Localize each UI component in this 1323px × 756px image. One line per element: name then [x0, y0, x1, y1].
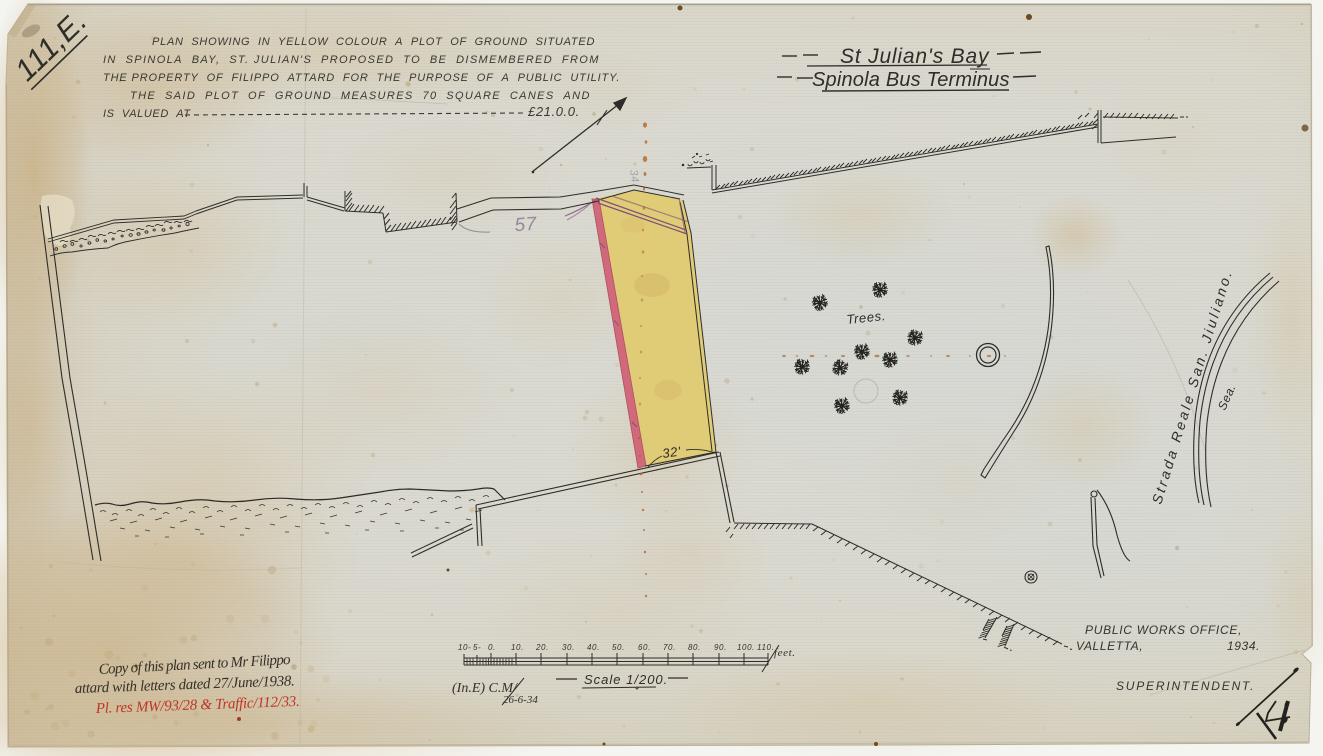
svg-text:PLAN SHOWING IN YELLOW COL: PLAN SHOWING IN YELLOW COLOUR A PLOT OF …	[152, 36, 595, 48]
svg-text:IN SPINOLA BAY, ST. JULIAN': IN SPINOLA BAY, ST. JULIAN'S PROPOSED TO…	[103, 54, 599, 66]
svg-text:50.: 50.	[612, 643, 625, 652]
svg-text:SUPERINTENDENT.: SUPERINTENDENT.	[1116, 679, 1254, 693]
svg-text:10.: 10.	[511, 643, 524, 652]
svg-text:5-: 5-	[473, 643, 481, 652]
svg-text:feet.: feet.	[774, 647, 796, 659]
svg-text:80.: 80.	[688, 643, 701, 652]
svg-text:26-6-34: 26-6-34	[503, 694, 538, 706]
svg-text:34: 34	[627, 169, 641, 184]
svg-text:40.: 40.	[587, 643, 600, 652]
svg-text:32': 32'	[661, 444, 682, 461]
svg-text:Scale 1/200.: Scale 1/200.	[584, 672, 668, 687]
svg-text:20.: 20.	[535, 643, 549, 652]
svg-text:110.: 110.	[757, 643, 774, 652]
svg-text:0.: 0.	[488, 643, 496, 652]
svg-text:Spinola Bus Terminus: Spinola Bus Terminus	[812, 69, 1010, 91]
svg-text:70.: 70.	[663, 643, 676, 652]
svg-text:60.: 60.	[638, 643, 651, 652]
svg-text:30.: 30.	[562, 643, 575, 652]
svg-text:VALLETTA,: VALLETTA,	[1076, 639, 1143, 653]
svg-text:10-: 10-	[458, 643, 471, 652]
svg-text:90.: 90.	[714, 643, 727, 652]
svg-text:PUBLIC WORKS OFFICE,: PUBLIC WORKS OFFICE,	[1085, 623, 1242, 637]
svg-text:57: 57	[514, 214, 539, 237]
svg-text:THE PROPERTY OF FILIPPO ATT: THE PROPERTY OF FILIPPO ATTARD FOR THE P…	[103, 72, 620, 84]
svg-text:IS VALUED AT: IS VALUED AT	[103, 108, 191, 120]
svg-text:£21.0.0.: £21.0.0.	[527, 104, 580, 119]
svg-text:1934.: 1934.	[1227, 639, 1260, 653]
svg-text:THE SAID PLOT OF GROUND M: THE SAID PLOT OF GROUND MEASURES 70 SQUA…	[130, 90, 590, 102]
svg-text:100.: 100.	[737, 643, 755, 652]
